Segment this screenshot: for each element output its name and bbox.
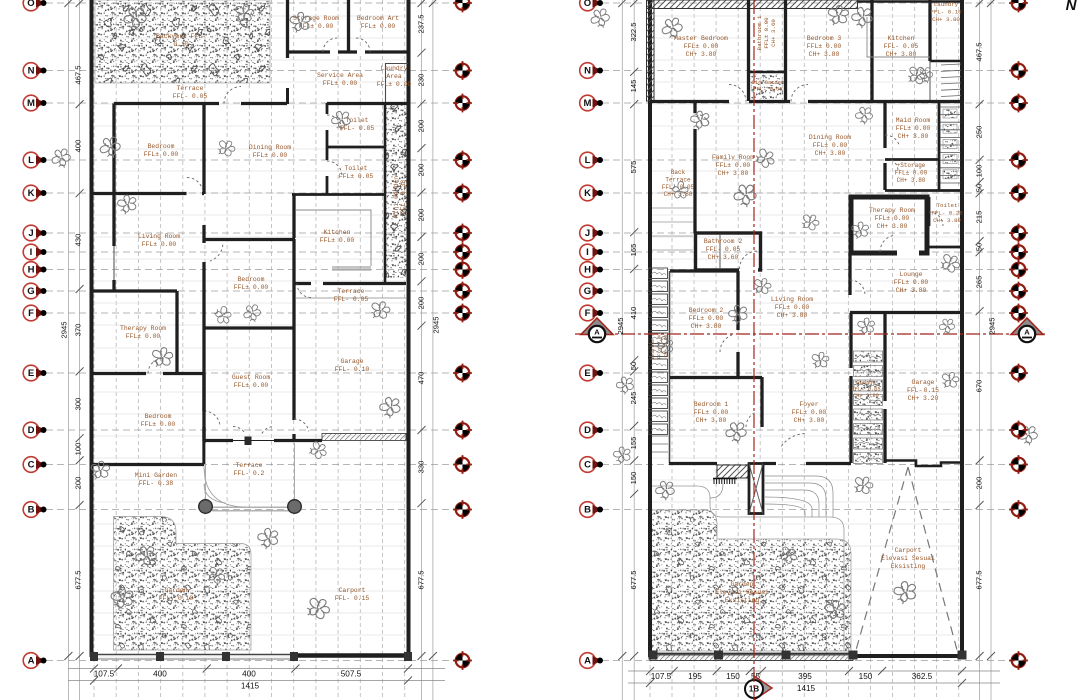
svg-text:CH+ 3.60: CH+ 3.60: [708, 254, 739, 261]
svg-text:N: N: [1066, 0, 1078, 14]
svg-text:237.5: 237.5: [417, 14, 426, 33]
svg-text:370: 370: [74, 324, 83, 337]
svg-text:FFL± 0.00: FFL± 0.00: [253, 152, 288, 159]
svg-text:K: K: [584, 188, 591, 199]
svg-text:CH+ 3.80: CH+ 3.80: [696, 417, 727, 424]
svg-text:CH+ 3.80: CH+ 3.80: [809, 51, 840, 58]
svg-text:Master Bedroom: Master Bedroom: [674, 35, 728, 42]
svg-text:200: 200: [417, 120, 426, 133]
svg-text:Bedroom 1: Bedroom 1: [694, 401, 729, 408]
svg-text:Mini Garden: Mini Garden: [393, 176, 400, 218]
svg-text:FFL± 0.00: FFL± 0.00: [813, 142, 848, 149]
svg-text:Kitchen: Kitchen: [888, 35, 915, 42]
svg-text:362.5: 362.5: [912, 672, 933, 681]
svg-text:CH+ 3.80: CH+ 3.80: [897, 177, 926, 184]
svg-text:FFL± 0.00: FFL± 0.00: [689, 315, 724, 322]
svg-text:C: C: [28, 460, 35, 471]
svg-text:FFL- 0.05: FFL- 0.05: [851, 387, 880, 393]
svg-text:Laundry: Laundry: [934, 1, 959, 8]
svg-text:Backyard FFL-: Backyard FFL-: [156, 33, 206, 40]
svg-text:575: 575: [629, 161, 638, 174]
svg-text:230: 230: [417, 74, 426, 87]
svg-text:Area: Area: [386, 73, 402, 80]
svg-text:Eksisting: Eksisting: [891, 563, 926, 570]
svg-text:FFL± 0.00: FFL± 0.00: [694, 409, 729, 416]
svg-text:245: 245: [629, 392, 638, 405]
svg-text:N: N: [584, 66, 591, 77]
svg-text:FFL± 0.00: FFL± 0.00: [896, 125, 931, 132]
svg-text:FFL- 0.05: FFL- 0.05: [884, 43, 919, 50]
svg-text:1415: 1415: [241, 682, 260, 691]
svg-text:150: 150: [629, 472, 638, 485]
svg-text:FFL± 0.00: FFL± 0.00: [320, 237, 355, 244]
svg-text:K: K: [28, 188, 35, 199]
svg-text:Bathroom 2: Bathroom 2: [704, 238, 743, 245]
svg-text:FFL- 0.25: FFL- 0.25: [931, 209, 963, 216]
svg-text:2945: 2945: [616, 318, 625, 335]
svg-text:CH+ 3.80: CH+ 3.80: [896, 287, 927, 294]
svg-text:J: J: [28, 228, 33, 239]
svg-text:FFL± 0.05: FFL± 0.05: [339, 173, 374, 180]
svg-text:430: 430: [74, 234, 83, 247]
svg-text:L: L: [585, 155, 591, 166]
svg-text:470: 470: [417, 372, 426, 385]
svg-text:FFL± 0.00: FFL± 0.00: [895, 169, 928, 176]
svg-text:100: 100: [975, 165, 984, 178]
svg-text:A: A: [1024, 327, 1030, 336]
svg-text:FFL± 0.00: FFL± 0.00: [361, 23, 396, 30]
svg-text:677.5: 677.5: [74, 570, 83, 589]
svg-text:CH+ 3.80: CH+ 3.80: [815, 150, 846, 157]
svg-text:Bedroom: Bedroom: [238, 276, 265, 283]
svg-text:CH+ 3.80: CH+ 3.80: [777, 312, 808, 319]
svg-text:CH+ 3.80: CH+ 3.80: [664, 191, 693, 198]
svg-text:200: 200: [417, 164, 426, 177]
svg-text:1415: 1415: [797, 684, 816, 693]
svg-text:300: 300: [74, 398, 83, 411]
svg-text:Bedroom 2: Bedroom 2: [689, 307, 724, 314]
svg-text:CH+ 3.80: CH+ 3.80: [718, 170, 749, 177]
svg-text:250: 250: [975, 126, 984, 139]
svg-text:670: 670: [975, 380, 984, 393]
svg-text:Living Room: Living Room: [138, 233, 180, 240]
svg-text:FFL- 0.05: FFL- 0.05: [334, 296, 369, 303]
svg-text:Bedroom 4: Bedroom 4: [650, 333, 656, 359]
svg-text:400: 400: [153, 670, 167, 679]
svg-text:Terrace: Terrace: [338, 288, 365, 295]
svg-text:Foyer: Foyer: [799, 401, 818, 408]
svg-text:L: L: [28, 155, 34, 166]
svg-text:507.5: 507.5: [341, 670, 362, 679]
svg-text:H: H: [28, 265, 35, 276]
svg-text:Mini Garden: Mini Garden: [135, 472, 177, 479]
svg-text:Laundry: Laundry: [381, 65, 408, 72]
svg-text:A: A: [584, 656, 591, 667]
svg-text:677.5: 677.5: [629, 570, 638, 589]
svg-text:Bedroom: Bedroom: [148, 143, 175, 150]
svg-text:Terrace: Terrace: [177, 85, 204, 92]
svg-text:D: D: [28, 425, 35, 436]
svg-text:Lin Garden: Lin Garden: [752, 80, 784, 86]
svg-text:Bedroom 3: Bedroom 3: [807, 35, 842, 42]
svg-text:FFL± 0.00: FFL± 0.00: [775, 304, 810, 311]
svg-text:FFL± 0.00: FFL± 0.00: [763, 17, 770, 49]
svg-text:Therapy Room: Therapy Room: [869, 207, 915, 214]
svg-text:A: A: [28, 656, 35, 667]
svg-text:195: 195: [688, 672, 702, 681]
svg-text:FFL- 0.05: FFL- 0.05: [340, 125, 375, 132]
svg-text:200: 200: [74, 477, 83, 490]
svg-text:FFL± 0.00: FFL± 0.00: [792, 409, 827, 416]
svg-text:+Storage: +Storage: [897, 162, 926, 169]
svg-text:400: 400: [242, 670, 256, 679]
svg-text:Garage: Garage: [911, 379, 934, 386]
svg-text:J: J: [585, 228, 590, 239]
svg-text:Dining Room: Dining Room: [809, 134, 851, 141]
svg-text:I: I: [30, 247, 33, 258]
svg-text:395: 395: [798, 672, 812, 681]
svg-text:FFL± 0.00: FFL± 0.00: [234, 382, 269, 389]
svg-text:FFL± 0.00: FFL± 0.00: [875, 215, 910, 222]
svg-text:D: D: [584, 425, 591, 436]
svg-text:CH+ 3.80: CH+ 3.80: [691, 323, 722, 330]
svg-text:467.5: 467.5: [74, 65, 83, 84]
svg-text:FFL- 0.38: FFL- 0.38: [139, 480, 174, 487]
svg-text:677.5: 677.5: [975, 570, 984, 589]
svg-text:100: 100: [74, 443, 83, 456]
svg-text:Dining Room: Dining Room: [249, 144, 291, 151]
svg-text:0.10: 0.10: [173, 41, 189, 48]
svg-text:200: 200: [975, 477, 984, 490]
svg-text:H: H: [584, 265, 591, 276]
svg-text:CH+ 3.60: CH+ 3.60: [770, 19, 777, 47]
svg-text:145: 145: [629, 80, 638, 93]
svg-text:200: 200: [417, 209, 426, 222]
svg-text:265: 265: [975, 276, 984, 289]
svg-text:FFL- 0.2: FFL- 0.2: [234, 470, 265, 477]
svg-text:CH+ 3.80: CH+ 3.80: [794, 417, 825, 424]
svg-text:Service Area: Service Area: [317, 72, 363, 79]
svg-text:330: 330: [417, 461, 426, 474]
svg-text:F: F: [28, 308, 34, 319]
svg-text:Eksisting: Eksisting: [725, 597, 760, 604]
svg-text:Bathroom 1: Bathroom 1: [756, 15, 763, 50]
svg-text:Elevasi Sesuai: Elevasi Sesuai: [881, 555, 935, 562]
svg-text:M: M: [27, 98, 35, 109]
svg-text:200: 200: [417, 297, 426, 310]
svg-text:107.5: 107.5: [94, 670, 115, 679]
svg-text:150: 150: [726, 672, 740, 681]
svg-text:FFL± 0.00: FFL± 0.00: [234, 284, 269, 291]
svg-text:FFL- 0.10: FFL- 0.10: [930, 8, 962, 15]
svg-text:200: 200: [417, 253, 426, 266]
svg-text:O: O: [27, 0, 34, 9]
svg-text:Living Room: Living Room: [771, 296, 813, 303]
svg-text:CH+ 3.80: CH+ 3.80: [933, 217, 961, 224]
svg-text:Therapy Room: Therapy Room: [120, 325, 166, 332]
svg-text:Guest Room: Guest Room: [232, 374, 271, 381]
svg-text:155: 155: [629, 437, 638, 450]
svg-text:FFL- 0.10: FFL- 0.10: [159, 595, 194, 602]
svg-text:CH+ 3.80: CH+ 3.80: [877, 223, 908, 230]
svg-text:Storage Room: Storage Room: [293, 15, 339, 22]
svg-text:N: N: [28, 66, 35, 77]
svg-text:FFL± 0.00: FFL± 0.00: [807, 43, 842, 50]
svg-text:Elevasi Sesuai: Elevasi Sesuai: [715, 589, 769, 596]
svg-text:FFL- 0.10: FFL- 0.10: [335, 366, 370, 373]
svg-text:FFL± 0.00: FFL± 0.00: [144, 151, 179, 158]
svg-text:FFL- 0.05: FFL- 0.05: [173, 93, 208, 100]
svg-text:FFL- 0.15: FFL- 0.15: [907, 387, 939, 394]
svg-text:Toilet: Toilet: [344, 165, 367, 172]
svg-text:Carport: Carport: [339, 587, 366, 594]
svg-text:165: 165: [629, 244, 638, 257]
svg-text:Lounge: Lounge: [899, 271, 922, 278]
svg-text:FFL- 0.38: FFL- 0.38: [400, 180, 407, 215]
svg-text:Garage: Garage: [340, 358, 363, 365]
svg-text:FFL± 0.00: FFL± 0.00: [323, 80, 358, 87]
svg-text:Terrace: Terrace: [236, 462, 263, 469]
svg-text:CH+ 3.20: CH+ 3.20: [908, 395, 939, 402]
svg-text:Toilet: Toilet: [937, 202, 958, 209]
svg-text:A: A: [594, 327, 600, 336]
svg-text:M: M: [584, 98, 592, 109]
svg-text:FFL± 0.00: FFL± 0.00: [142, 241, 177, 248]
svg-text:Terrace: Terrace: [665, 176, 691, 183]
svg-text:I: I: [586, 247, 589, 258]
svg-text:E: E: [28, 368, 34, 379]
svg-text:FFL- 0.05: FFL- 0.05: [753, 87, 782, 93]
svg-text:Maid Room: Maid Room: [896, 117, 931, 124]
svg-text:Bedroom: Bedroom: [145, 413, 172, 420]
svg-text:C: C: [584, 460, 591, 471]
svg-text:Family Room: Family Room: [712, 154, 754, 161]
svg-text:B: B: [584, 505, 591, 516]
svg-text:B: B: [28, 505, 35, 516]
svg-text:2945: 2945: [988, 318, 997, 335]
svg-text:FFL± 0.00: FFL± 0.00: [141, 421, 176, 428]
svg-text:G: G: [27, 286, 34, 297]
svg-text:410: 410: [629, 307, 638, 320]
svg-text:322.5: 322.5: [629, 22, 638, 41]
svg-text:Carport: Carport: [895, 547, 922, 554]
svg-text:2945: 2945: [432, 317, 441, 334]
svg-text:Kitchen: Kitchen: [324, 229, 351, 236]
svg-text:Garden: Garden: [730, 581, 753, 588]
svg-text:CH+ 3.80: CH+ 3.80: [886, 51, 917, 58]
svg-text:215: 215: [975, 211, 984, 224]
svg-text:FFL- 0.05: FFL- 0.05: [706, 246, 741, 253]
svg-text:E: E: [584, 368, 590, 379]
svg-text:Garden: Garden: [164, 587, 187, 594]
svg-text:150: 150: [859, 672, 873, 681]
svg-text:FFL- 0.15: FFL- 0.15: [335, 595, 370, 602]
svg-text:2945: 2945: [60, 322, 69, 339]
svg-text:107.5: 107.5: [651, 672, 672, 681]
svg-text:CH+ 3.80: CH+ 3.80: [898, 133, 929, 140]
svg-text:Bedroom Art: Bedroom Art: [357, 15, 399, 22]
svg-text:FFL± 0.00: FFL± 0.00: [894, 279, 929, 286]
svg-text:G: G: [584, 286, 591, 297]
svg-text:CH+ 2.80: CH+ 2.80: [853, 393, 879, 399]
svg-text:FFL± 0.00: FFL± 0.00: [684, 43, 719, 50]
svg-text:FFL± 0.00: FFL± 0.00: [716, 162, 751, 169]
svg-text:F: F: [585, 308, 591, 319]
svg-text:FFL± 0.00: FFL± 0.00: [377, 81, 412, 88]
svg-text:FFL± 0.00: FFL± 0.00: [126, 333, 161, 340]
svg-text:677.5: 677.5: [417, 570, 426, 589]
svg-text:400: 400: [74, 140, 83, 153]
svg-text:Gudang: Gudang: [856, 380, 875, 386]
svg-text:O: O: [584, 0, 591, 9]
svg-text:Back: Back: [671, 169, 686, 176]
svg-text:CH+ 3.80: CH+ 3.80: [932, 16, 960, 23]
svg-text:CH+ 3.80: CH+ 3.80: [686, 51, 717, 58]
svg-text:467.5: 467.5: [975, 42, 984, 61]
